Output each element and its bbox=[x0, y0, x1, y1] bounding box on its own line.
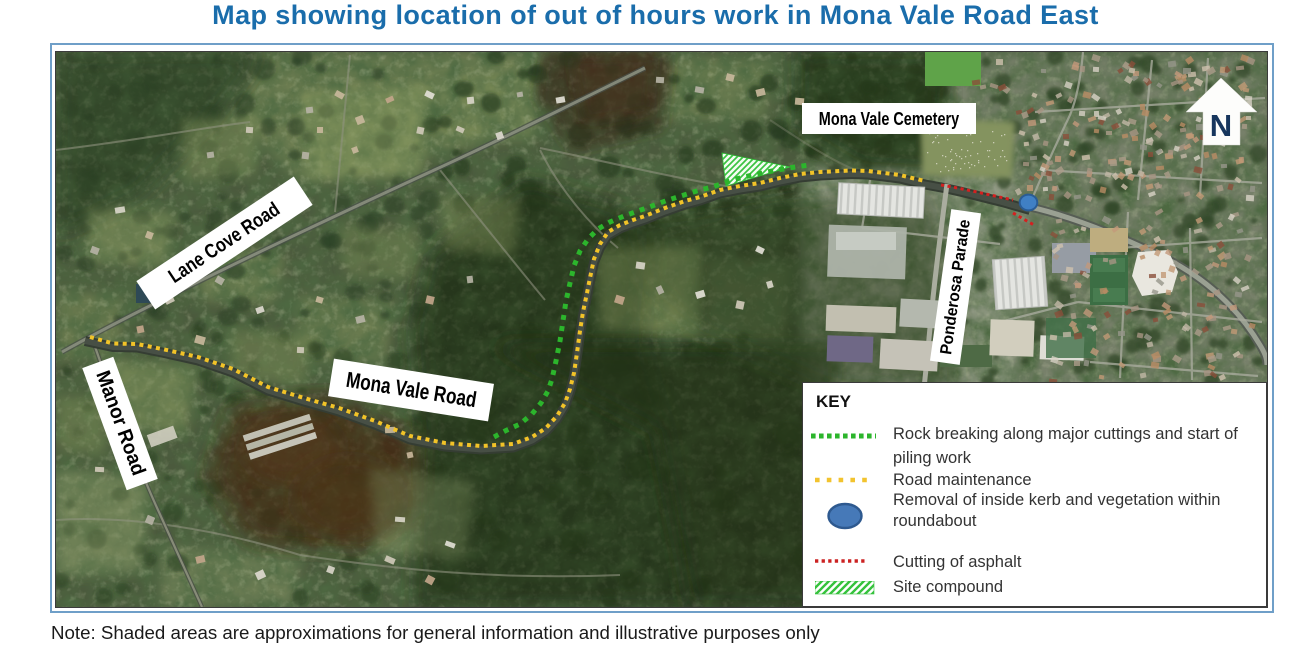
svg-text:N: N bbox=[1210, 108, 1232, 143]
